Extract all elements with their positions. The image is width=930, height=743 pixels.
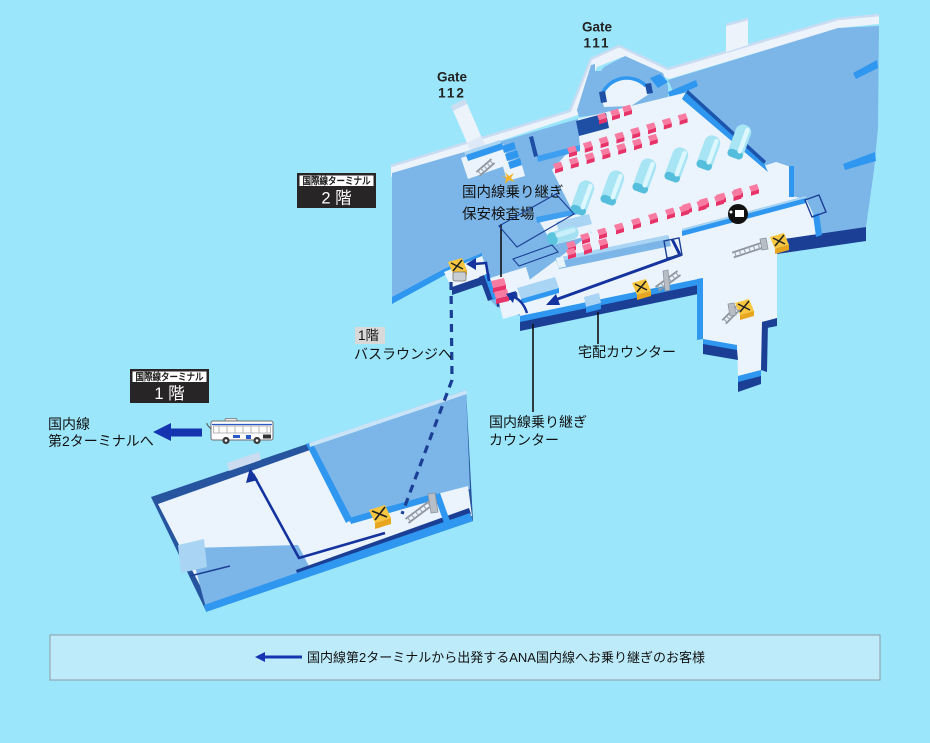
svg-text:国内線乗り継ぎ: 国内線乗り継ぎ xyxy=(489,414,587,430)
svg-text:保安検査場: 保安検査場 xyxy=(462,206,535,223)
svg-text:国内線: 国内線 xyxy=(48,416,90,432)
svg-text:バスラウンジへ: バスラウンジへ xyxy=(354,346,452,362)
svg-text:Gate: Gate xyxy=(437,70,468,85)
svg-text:国際線ターミナル: 国際線ターミナル xyxy=(136,371,204,384)
svg-text:カウンター: カウンター xyxy=(489,432,559,448)
svg-text:第2ターミナルへ: 第2ターミナルへ xyxy=(48,433,154,449)
svg-text:2 階: 2 階 xyxy=(321,189,351,208)
svg-text:112: 112 xyxy=(438,86,466,101)
svg-text:国際線ターミナル: 国際線ターミナル xyxy=(303,175,371,188)
svg-text:1 階: 1 階 xyxy=(154,384,184,403)
svg-text:111: 111 xyxy=(583,36,610,51)
svg-text:1階: 1階 xyxy=(358,328,379,343)
svg-text:宅配カウンター: 宅配カウンター xyxy=(578,344,676,360)
svg-text:Gate: Gate xyxy=(582,20,613,35)
svg-text:国内線第2ターミナルから出発するANA国内線へお乗り継ぎのお: 国内線第2ターミナルから出発するANA国内線へお乗り継ぎのお客様 xyxy=(307,650,705,665)
